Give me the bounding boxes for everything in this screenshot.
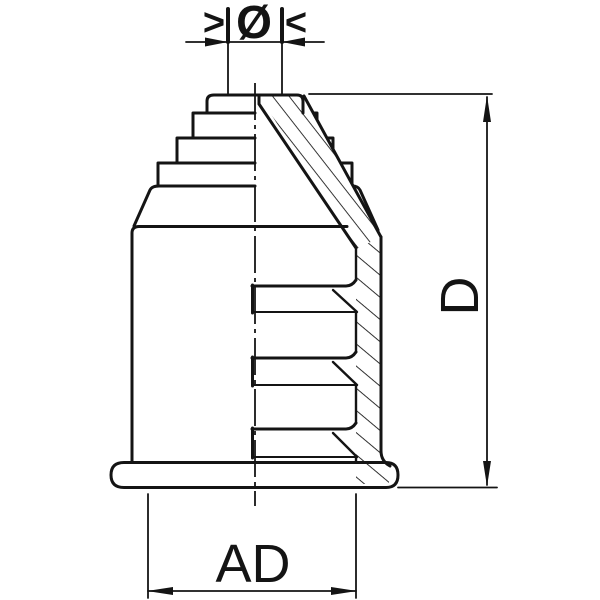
label-clamp-lt: < — [285, 2, 307, 44]
label-D: D — [430, 277, 490, 316]
cone-chamfer-and-ledge4 — [134, 186, 255, 226]
AD-arrowhead-right — [331, 587, 357, 595]
label-clamp-gt: > — [203, 2, 225, 44]
step4-side-and-ledge3 — [158, 163, 255, 186]
label-diameter-symbol: Ø — [236, 0, 272, 48]
AD-arrowhead-left — [147, 587, 173, 595]
body-left-edge-and-shoulder — [132, 227, 347, 463]
cap-section-drawing: > Ø < D AD — [0, 0, 600, 600]
section-body-wall — [356, 237, 390, 484]
technical-drawing-page: > Ø < D AD — [0, 0, 600, 600]
tooth-2 — [252, 352, 357, 386]
internal-teeth — [252, 280, 357, 458]
body-wall-hatching — [356, 237, 389, 484]
step2-side-and-ledge1 — [193, 113, 255, 138]
tooth-1 — [252, 280, 357, 313]
D-arrowhead-down — [483, 461, 491, 487]
D-arrowhead-up — [483, 96, 491, 123]
tooth-3 — [252, 423, 357, 458]
dim-clamping-diameter: > Ø < — [186, 0, 324, 94]
body-wall-outer-edge — [381, 237, 390, 466]
dim-width-AD: AD — [147, 494, 357, 598]
step3-side-and-ledge2 — [177, 138, 255, 163]
label-AD: AD — [215, 534, 290, 594]
